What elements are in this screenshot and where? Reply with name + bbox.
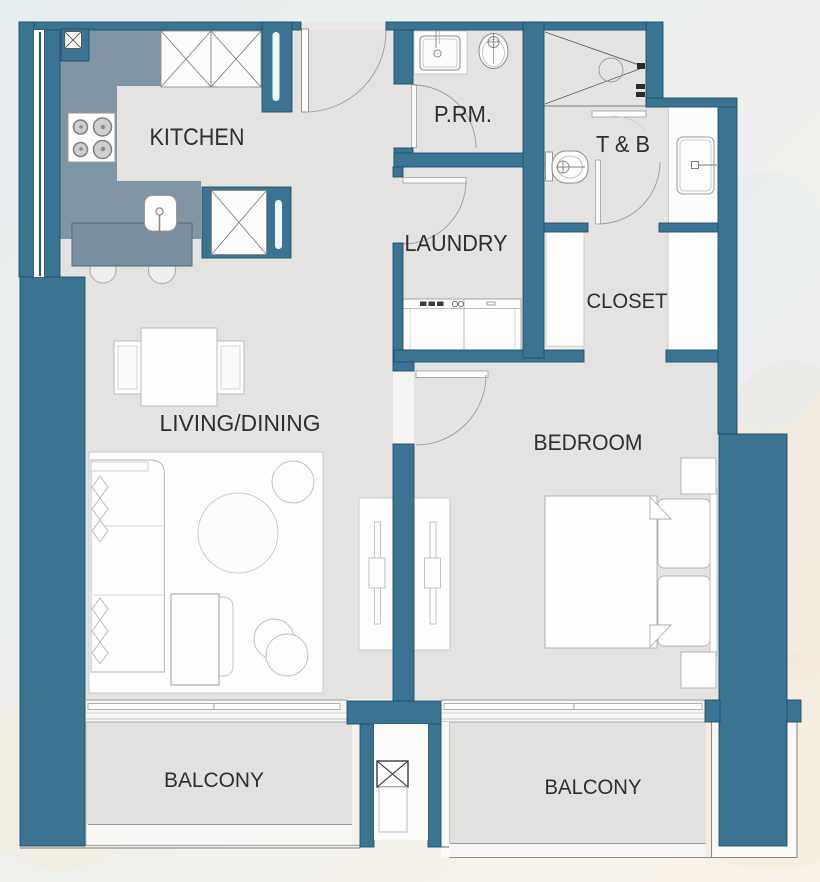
svg-text:BALCONY: BALCONY	[164, 769, 264, 792]
svg-text:LAUNDRY: LAUNDRY	[405, 230, 508, 256]
svg-text:BALCONY: BALCONY	[545, 776, 642, 799]
svg-text:CLOSET: CLOSET	[587, 290, 668, 313]
svg-text:LIVING/DINING: LIVING/DINING	[160, 410, 321, 436]
svg-text:T & B: T & B	[596, 131, 650, 157]
svg-text:KITCHEN: KITCHEN	[150, 124, 245, 151]
svg-text:P.RM.: P.RM.	[434, 101, 492, 127]
svg-text:BEDROOM: BEDROOM	[534, 430, 643, 455]
